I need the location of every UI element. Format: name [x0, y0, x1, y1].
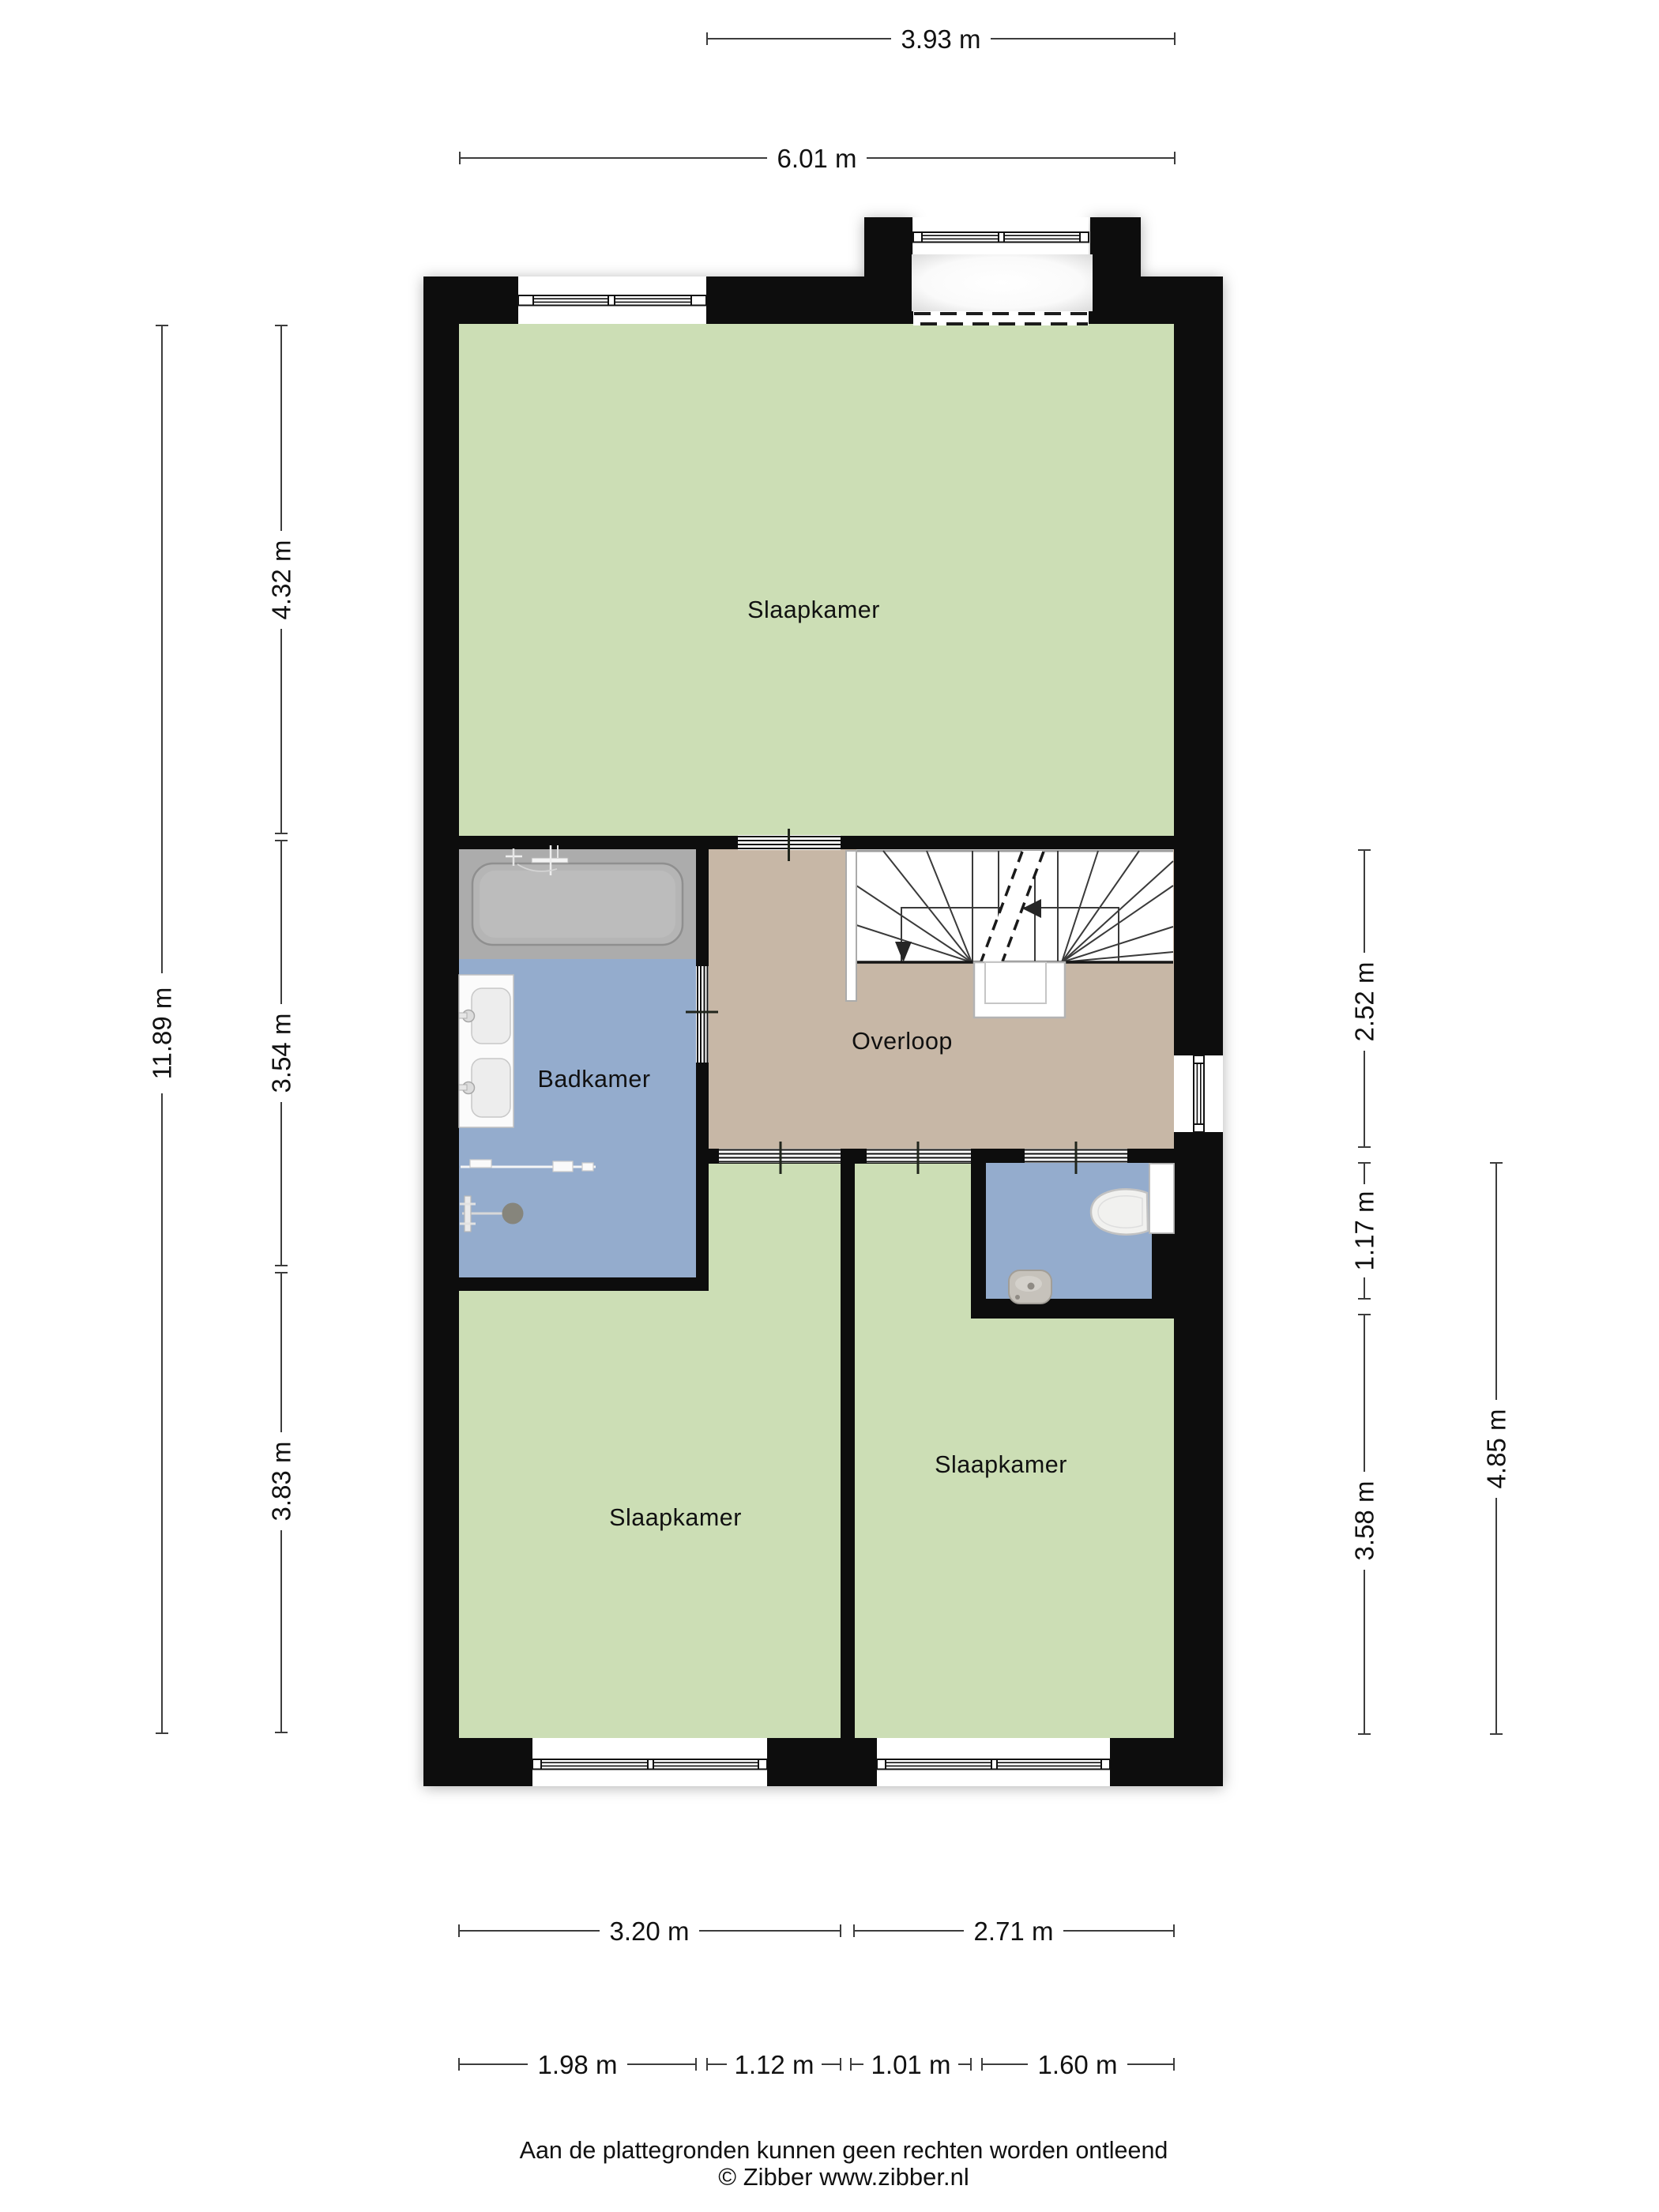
svg-text:3.54 m: 3.54 m — [267, 1014, 296, 1093]
svg-text:Slaapkamer: Slaapkamer — [935, 1451, 1067, 1478]
svg-text:Overloop: Overloop — [852, 1028, 953, 1055]
svg-text:2.71 m: 2.71 m — [974, 1917, 1054, 1946]
svg-text:1.17 m: 1.17 m — [1350, 1191, 1379, 1271]
svg-text:3.83 m: 3.83 m — [267, 1442, 296, 1522]
svg-text:1.12 m: 1.12 m — [735, 2050, 814, 2079]
svg-text:Slaapkamer: Slaapkamer — [609, 1504, 742, 1531]
svg-text:2.52 m: 2.52 m — [1350, 962, 1379, 1042]
svg-text:Badkamer: Badkamer — [537, 1066, 650, 1093]
svg-text:Aan de plattegronden kunnen ge: Aan de plattegronden kunnen geen rechten… — [520, 2137, 1168, 2164]
svg-text:4.85 m: 4.85 m — [1482, 1409, 1511, 1489]
svg-text:4.32 m: 4.32 m — [267, 540, 296, 620]
svg-text:3.20 m: 3.20 m — [610, 1917, 690, 1946]
svg-text:1.01 m: 1.01 m — [871, 2050, 951, 2079]
svg-text:3.93 m: 3.93 m — [901, 24, 981, 54]
svg-text:© Zibber www.zibber.nl: © Zibber www.zibber.nl — [718, 2163, 969, 2191]
svg-text:Slaapkamer: Slaapkamer — [747, 596, 880, 623]
svg-text:6.01 m: 6.01 m — [777, 144, 857, 173]
svg-text:3.58 m: 3.58 m — [1350, 1481, 1379, 1561]
svg-text:1.98 m: 1.98 m — [538, 2050, 618, 2079]
svg-text:1.60 m: 1.60 m — [1038, 2050, 1118, 2079]
svg-text:11.89 m: 11.89 m — [148, 987, 177, 1080]
